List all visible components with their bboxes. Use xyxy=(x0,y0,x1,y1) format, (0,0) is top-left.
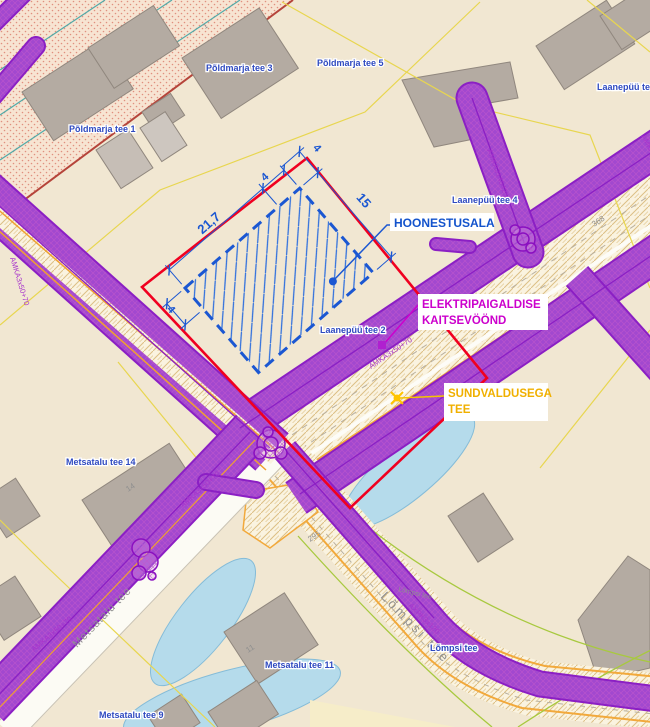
sundvaldus-label-line2: TEE xyxy=(448,404,471,416)
street-label: Metsatalu tee 11 xyxy=(265,660,334,670)
elektri-label-line1: ELEKTRIPAIGALDISE xyxy=(422,299,541,311)
elektri-label-line2: KAITSEVÖÖND xyxy=(422,314,506,327)
street-label: Laanepüü tee 4 xyxy=(452,195,518,205)
street-label: Lõmpsi tee xyxy=(430,643,478,653)
street-label: Metsatalu tee 9 xyxy=(99,710,164,720)
street-label: Laanepüü tee 2 xyxy=(320,325,386,335)
street-label: Laanepüü tee xyxy=(597,82,650,92)
street-label: Metsatalu tee 14 xyxy=(66,457,136,467)
sundvaldus-label-line1: SUNDVALDUSEGA xyxy=(448,388,552,400)
hoonestusala-label: HOONESTUSALA xyxy=(394,216,495,230)
street-label: Põldmarja tee 3 xyxy=(206,63,273,73)
street-label: Põldmarja tee 5 xyxy=(317,58,384,68)
elektri-marker xyxy=(378,341,386,349)
street-label: Põldmarja tee 1 xyxy=(69,124,136,134)
map-canvas[interactable]: AMKA3146425 AMKA3x50+70 AMKA3x50+70 AMKA… xyxy=(0,0,650,727)
